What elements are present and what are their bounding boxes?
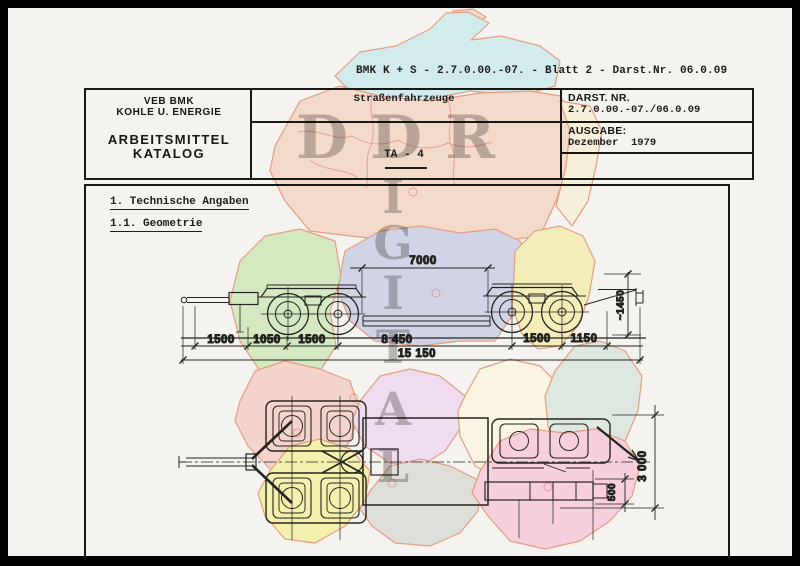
watermark-letter-t: T [376, 320, 410, 374]
watermark-letter-r: R [445, 103, 496, 173]
watermark-letter-d1: D [296, 103, 348, 173]
watermark-letter-a: A [374, 382, 412, 436]
watermark-letter-l: L [377, 439, 409, 493]
ddr-digital-watermark: D D R I G I T A L [0, 0, 800, 566]
watermark-letter-d2: D [370, 103, 422, 173]
scanned-catalog-page: { "document": { "reference_line": "BMK K… [0, 0, 800, 566]
watermark-letter-i2: I [382, 266, 404, 320]
watermark-letter-g: G [373, 216, 412, 270]
